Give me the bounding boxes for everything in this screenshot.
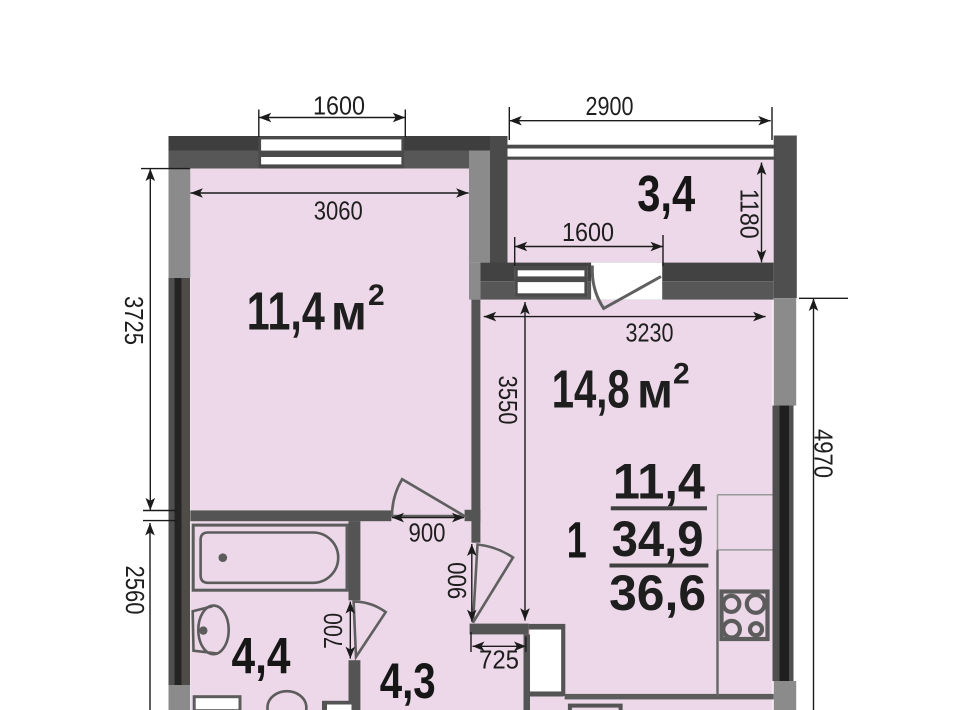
- svg-text:11,4: 11,4: [613, 454, 705, 510]
- svg-text:1600: 1600: [313, 91, 365, 121]
- svg-text:11,4: 11,4: [247, 281, 325, 341]
- svg-text:4,3: 4,3: [380, 653, 436, 709]
- svg-text:900: 900: [442, 562, 472, 599]
- svg-text:900: 900: [409, 518, 446, 548]
- svg-text:3550: 3550: [493, 376, 523, 425]
- svg-text:725: 725: [479, 645, 519, 675]
- svg-text:м: м: [637, 363, 673, 419]
- svg-text:3,4: 3,4: [637, 165, 696, 222]
- svg-text:34,9: 34,9: [612, 511, 704, 567]
- svg-text:36,6: 36,6: [609, 565, 706, 621]
- svg-text:4,4: 4,4: [232, 627, 292, 684]
- svg-text:14,8: 14,8: [552, 360, 630, 420]
- svg-text:3230: 3230: [626, 317, 674, 347]
- svg-text:3725: 3725: [119, 296, 149, 345]
- svg-text:2900: 2900: [586, 91, 634, 121]
- svg-text:700: 700: [318, 613, 348, 649]
- svg-text:4970: 4970: [809, 429, 839, 478]
- svg-text:3060: 3060: [314, 196, 363, 226]
- svg-text:2560: 2560: [120, 566, 150, 615]
- svg-text:1180: 1180: [735, 189, 765, 239]
- svg-text:2: 2: [673, 358, 690, 391]
- svg-text:2: 2: [368, 279, 385, 312]
- svg-text:м: м: [331, 284, 367, 340]
- svg-text:1600: 1600: [562, 217, 614, 247]
- svg-text:1: 1: [567, 512, 587, 569]
